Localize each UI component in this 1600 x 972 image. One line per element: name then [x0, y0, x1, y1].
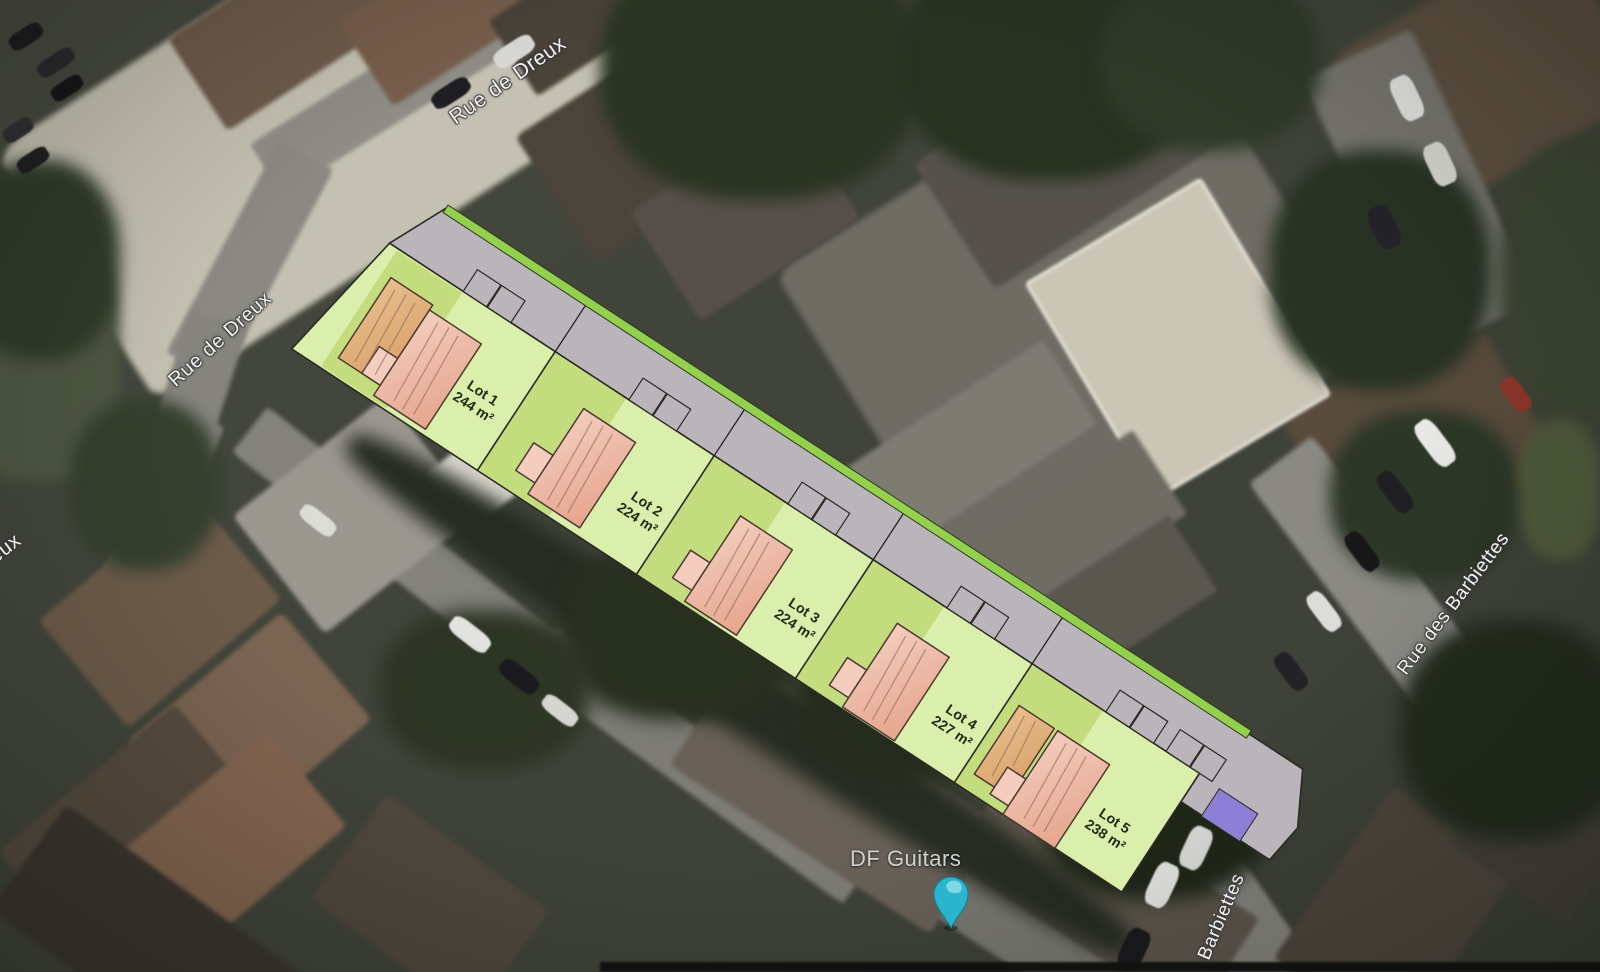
site-plan-overlay: Lot 1 244 m² Lot 2 224 m² Lot 3 224 m² L…: [0, 0, 1600, 972]
poi-label-df-guitars[interactable]: DF Guitars: [850, 846, 961, 872]
map-viewport: Lot 1 244 m² Lot 2 224 m² Lot 3 224 m² L…: [0, 0, 1600, 972]
